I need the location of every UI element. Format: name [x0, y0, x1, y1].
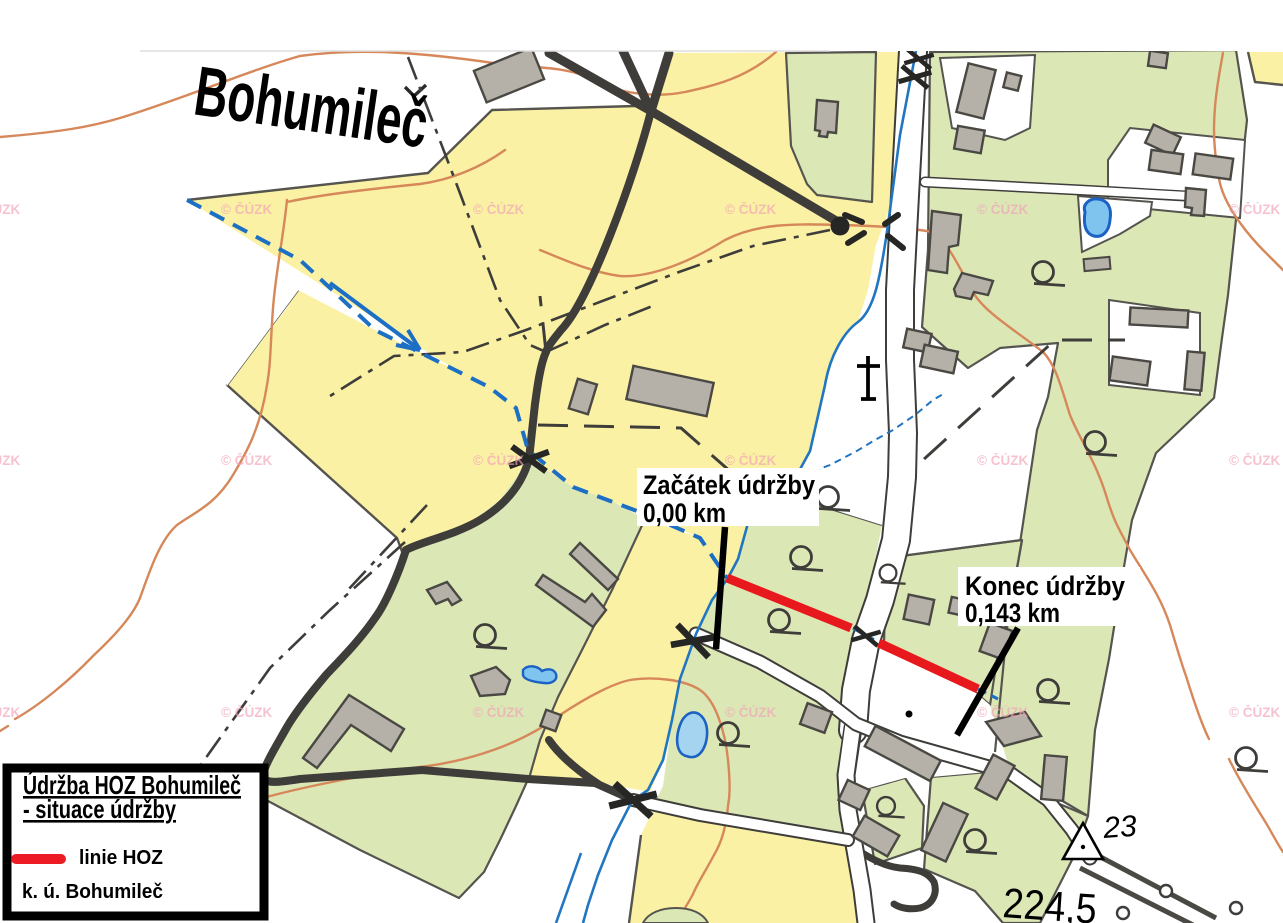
svg-text:Konec údržby: Konec údržby — [965, 571, 1125, 601]
svg-text:Začátek údržby: Začátek údržby — [643, 470, 815, 500]
svg-text:linie HOZ: linie HOZ — [79, 847, 163, 869]
svg-text:0,143 km: 0,143 km — [965, 598, 1060, 628]
svg-text:224,5: 224,5 — [1001, 879, 1098, 923]
svg-text:k. ú. Bohumileč: k. ú. Bohumileč — [22, 881, 163, 903]
svg-text:- situace údržby: - situace údržby — [23, 794, 176, 824]
svg-text:23: 23 — [1101, 810, 1138, 845]
svg-text:0,00 km: 0,00 km — [643, 498, 726, 528]
